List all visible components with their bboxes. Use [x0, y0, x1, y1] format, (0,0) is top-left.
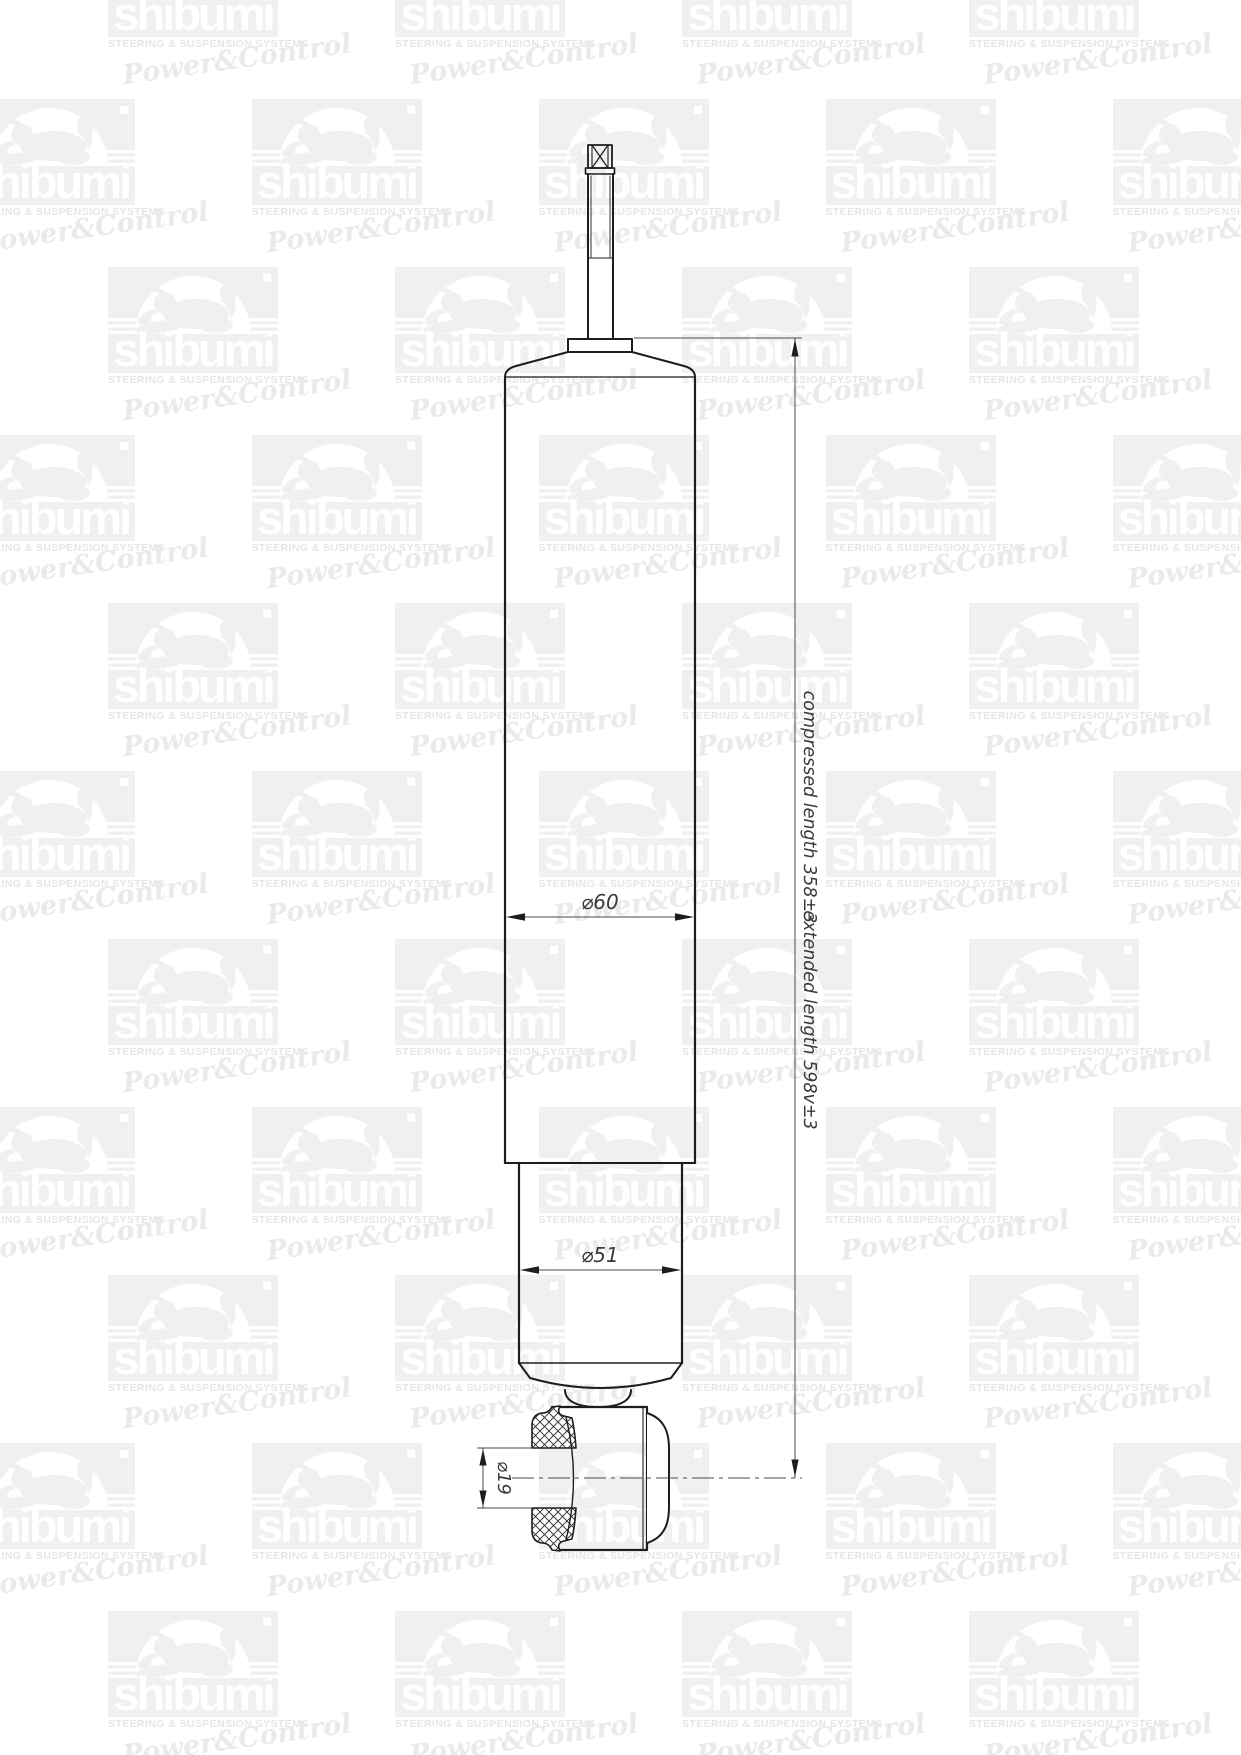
- dim-text-eye-bore: ⌀19: [493, 1461, 514, 1495]
- piston-rod: [588, 174, 613, 339]
- dim-text-body-diameter: ⌀60: [581, 890, 619, 914]
- dim-text-lower-diameter: ⌀51: [581, 1243, 619, 1267]
- drawing-page: shibumi STEERING & SUSPENSION SYSTEMS Po…: [0, 0, 1241, 1755]
- reserve-tube: [505, 377, 695, 1163]
- lower-tube: [519, 1163, 682, 1407]
- spring-seat-washer: [568, 339, 632, 352]
- dust-cone: [505, 352, 695, 377]
- shock-absorber-technical-drawing: ⌀60 ⌀51 ⌀19 compressed length 358±3 exte…: [0, 0, 1241, 1755]
- dim-length: [634, 338, 802, 1478]
- rubber-bushing-lower-section: [532, 1508, 576, 1551]
- rubber-bushing-upper-section: [532, 1406, 576, 1448]
- dimension-arrows: [479, 339, 798, 1507]
- dim-text-extended-length: extended length 598v±3: [799, 910, 819, 1129]
- dim-text-compressed-length: compressed length 358±3: [799, 691, 819, 924]
- stud-thread-end: [586, 145, 615, 174]
